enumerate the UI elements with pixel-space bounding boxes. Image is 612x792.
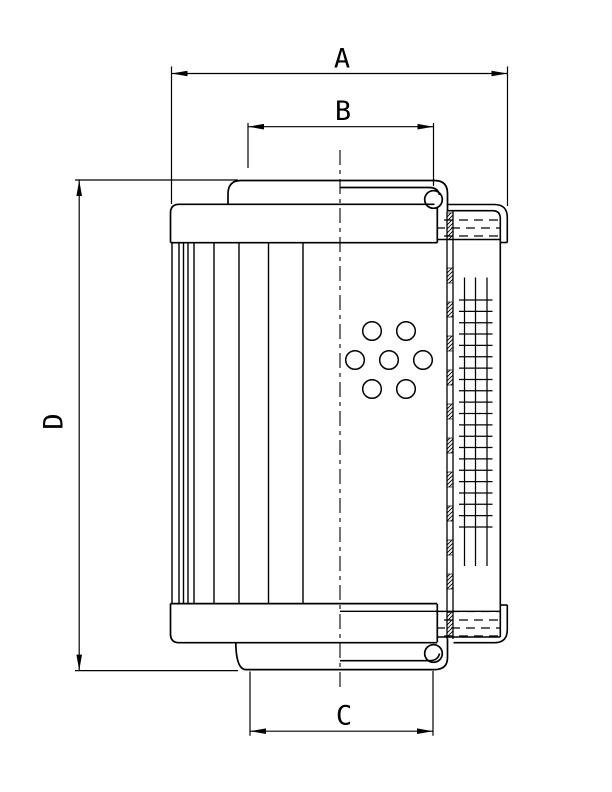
perforation-hole	[397, 322, 416, 341]
inner-tube-hatch-segments	[447, 213, 453, 637]
tube-hatch-segment	[447, 268, 453, 283]
top-inner-cap-outline	[228, 181, 448, 212]
dimension-b: B	[248, 96, 434, 186]
tube-hatch-segment	[447, 472, 453, 487]
dim-d-arrow-bottom	[76, 655, 82, 671]
drawing-page: A B C D	[0, 0, 612, 792]
outer-shell	[448, 205, 508, 643]
tube-hatch-segment	[447, 613, 453, 638]
tube-hatch-segment	[447, 370, 453, 385]
dim-b-arrow-right	[418, 124, 434, 130]
perforation-hole	[397, 380, 416, 399]
bottom-cap-left-bottom-edge	[171, 604, 438, 643]
dim-c-arrow-left	[250, 728, 266, 734]
bottom-end-cap	[171, 604, 448, 670]
dim-d-arrow-top	[76, 180, 82, 196]
tube-hatch-segment	[447, 540, 453, 555]
perforation-hole	[414, 351, 433, 370]
perforation-hole	[363, 380, 382, 399]
inner-support-tube	[447, 212, 453, 640]
tube-hatch-segment	[447, 302, 453, 317]
dimension-d: D	[39, 180, 239, 671]
perforation-hole	[346, 351, 365, 370]
shell-flange-inner-and-wall	[448, 211, 501, 637]
dim-a-arrow-left	[172, 71, 188, 77]
technical-drawing: A B C D	[0, 0, 612, 792]
dim-b-arrow-left	[248, 124, 264, 130]
tube-hatch-segment	[447, 213, 453, 240]
dim-c-arrow-right	[417, 728, 433, 734]
outer-mesh-screen	[459, 278, 493, 567]
tube-hatch-segment	[447, 506, 453, 521]
adhesive-potting-bottom	[340, 611, 500, 637]
tube-hatch-segment	[447, 574, 453, 589]
top-o-ring	[425, 191, 443, 209]
tube-hatch-segment	[447, 404, 453, 419]
tube-hatch-segment	[447, 438, 453, 453]
top-end-cap	[171, 181, 448, 243]
dim-b-extension-lines	[248, 123, 434, 186]
tube-hatch-segment	[447, 336, 453, 351]
media-perforation-holes	[346, 322, 433, 399]
dimension-a-label: A	[334, 44, 350, 75]
dim-a-arrow-right	[492, 71, 508, 77]
top-cap-top-left-edge	[171, 204, 435, 242]
dimension-c-label: C	[336, 701, 352, 732]
dimension-d-label: D	[39, 413, 70, 429]
perforation-hole	[363, 322, 382, 341]
top-inner-cap-section-line	[340, 188, 440, 196]
perforation-hole	[380, 351, 399, 370]
dimension-c: C	[250, 671, 433, 736]
pleated-filter-media	[172, 243, 303, 604]
dimension-b-label: B	[335, 96, 351, 127]
